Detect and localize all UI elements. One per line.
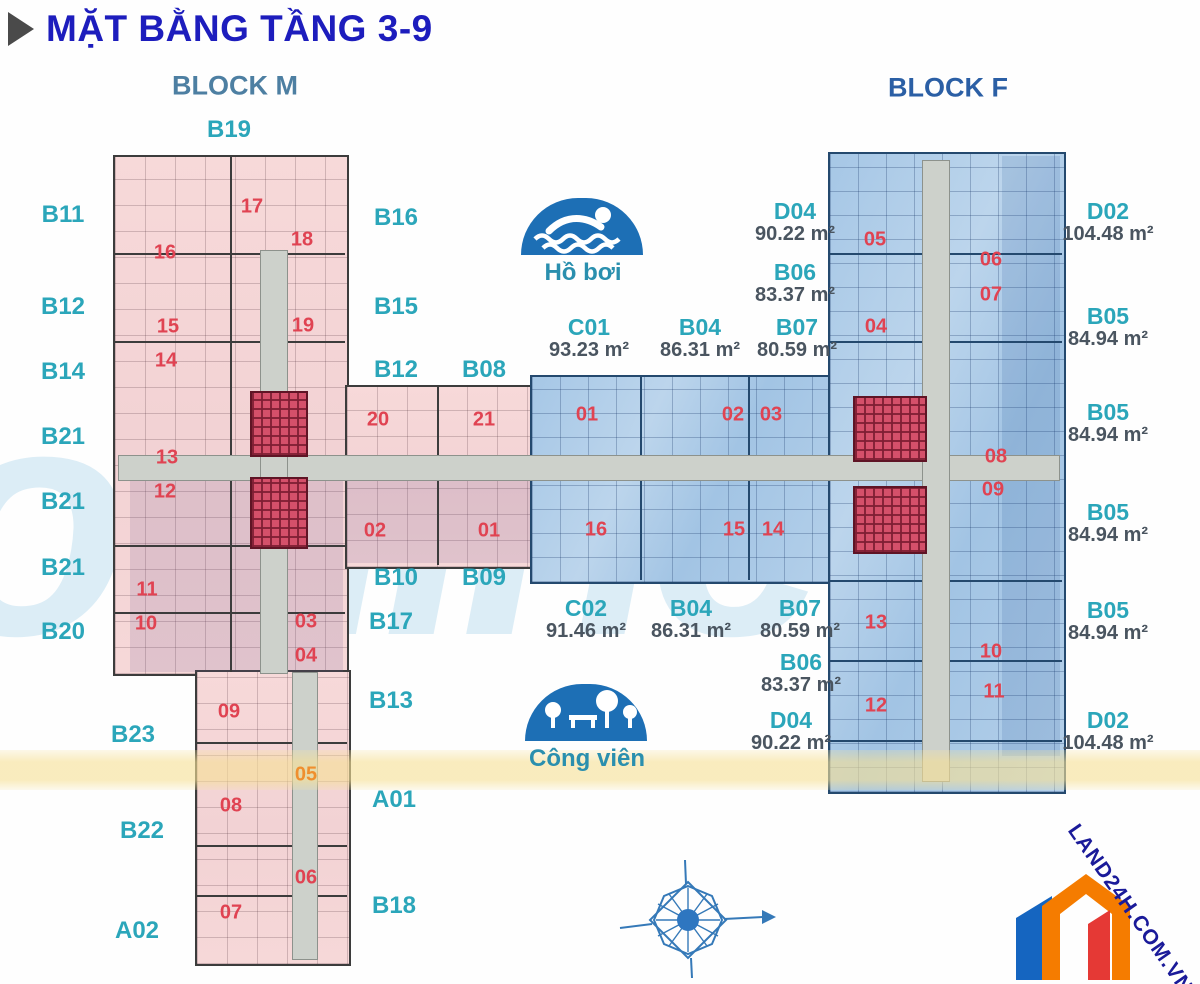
unit-number-15-25: 15	[723, 519, 745, 542]
unit-number-09-32: 09	[982, 479, 1004, 502]
unit-number-01-21: 01	[576, 404, 598, 427]
unit-number-07-20: 07	[220, 902, 242, 925]
block-m-tail-corridor	[292, 672, 318, 960]
unit-area: 86.31 m²	[651, 621, 731, 643]
unit-code: D02	[1062, 199, 1153, 224]
unit-number-15-3: 15	[157, 316, 179, 339]
floor-plan-page: online MẶT BẰNG TẦNG 3-9	[0, 0, 1200, 984]
unit-code: B06	[761, 650, 841, 675]
unit-area-label-b04-6: B0486.31 m²	[651, 596, 731, 642]
unit-number-21-11: 21	[473, 409, 495, 432]
unit-number-03-23: 03	[760, 404, 782, 427]
block-header-m: BLOCK M	[172, 71, 298, 102]
unit-type-label-b22-9: B22	[120, 817, 164, 845]
unit-type-label-b13-18: B13	[369, 687, 413, 715]
unit-area: 83.37 m²	[755, 285, 835, 307]
unit-type-label-b12-2: B12	[41, 293, 85, 321]
unit-type-label-b21-6: B21	[41, 554, 85, 582]
block-m-core-2	[250, 477, 308, 549]
unit-code: B05	[1068, 304, 1148, 329]
pool-amenity: Hồ bơi	[521, 198, 645, 287]
block-m-corridor	[260, 250, 288, 674]
unit-code: B05	[1068, 598, 1148, 623]
unit-area-label-d04-3: D0490.22 m²	[755, 199, 835, 245]
unit-type-label-a02-10: A02	[115, 917, 159, 945]
unit-type-label-b21-5: B21	[41, 488, 85, 516]
unit-area-label-d02-15: D02104.48 m²	[1062, 708, 1153, 754]
unit-area: 84.94 m²	[1068, 525, 1148, 547]
unit-code: B04	[651, 596, 731, 621]
block-f-corridor	[922, 160, 950, 782]
unit-number-16-24: 16	[585, 519, 607, 542]
unit-code: B05	[1068, 400, 1148, 425]
unit-number-14-26: 14	[762, 519, 784, 542]
unit-area: 93.23 m²	[549, 340, 629, 362]
unit-area: 83.37 m²	[761, 675, 841, 697]
unit-number-14-4: 14	[155, 350, 177, 373]
unit-area-label-c02-5: C0291.46 m²	[546, 596, 626, 642]
unit-number-07-29: 07	[980, 284, 1002, 307]
unit-number-19-5: 19	[292, 315, 314, 338]
unit-code: D04	[755, 199, 835, 224]
unit-number-08-31: 08	[985, 446, 1007, 469]
unit-area: 80.59 m²	[757, 340, 837, 362]
unit-area: 104.48 m²	[1062, 224, 1153, 246]
page-title-row: MẶT BẰNG TẦNG 3-9	[8, 8, 433, 50]
unit-area-label-b06-4: B0683.37 m²	[755, 260, 835, 306]
park-icon	[525, 684, 647, 741]
block-header-f: BLOCK F	[888, 73, 1008, 104]
unit-code: C01	[549, 315, 629, 340]
unit-type-label-b17-17: B17	[369, 608, 413, 636]
unit-type-label-b11-1: B11	[42, 201, 85, 229]
unit-number-11-35: 11	[983, 681, 1004, 704]
unit-area-label-b07-2: B0780.59 m²	[757, 315, 837, 361]
unit-number-06-28: 06	[980, 249, 1002, 272]
unit-type-label-b10-15: B10	[374, 564, 418, 592]
unit-area-label-b04-1: B0486.31 m²	[660, 315, 740, 361]
unit-code: B05	[1068, 500, 1148, 525]
unit-code: B07	[760, 596, 840, 621]
unit-area: 84.94 m²	[1068, 623, 1148, 645]
unit-type-label-b12-13: B12	[374, 356, 418, 384]
unit-number-11-8: 11	[136, 579, 157, 602]
unit-number-16-2: 16	[154, 242, 176, 265]
unit-type-label-b18-20: B18	[372, 892, 416, 920]
unit-area-label-d04-9: D0490.22 m²	[751, 708, 831, 754]
unit-type-label-b09-16: B09	[462, 564, 506, 592]
unit-number-02-22: 02	[722, 404, 744, 427]
unit-area-label-d02-10: D02104.48 m²	[1062, 199, 1153, 245]
unit-number-13-33: 13	[865, 612, 887, 635]
unit-type-label-b19-0: B19	[207, 116, 251, 144]
unit-code: C02	[546, 596, 626, 621]
play-triangle-icon	[8, 12, 34, 46]
unit-area: 84.94 m²	[1068, 425, 1148, 447]
unit-number-12-7: 12	[154, 481, 176, 504]
unit-number-08-18: 08	[220, 795, 242, 818]
unit-number-20-10: 20	[367, 409, 389, 432]
unit-number-10-34: 10	[980, 641, 1002, 664]
unit-number-04-30: 04	[865, 316, 887, 339]
unit-code: D04	[751, 708, 831, 733]
unit-area-label-b05-12: B0584.94 m²	[1068, 400, 1148, 446]
unit-area-label-b06-8: B0683.37 m²	[761, 650, 841, 696]
unit-number-17-0: 17	[241, 196, 263, 219]
unit-number-13-6: 13	[156, 447, 178, 470]
unit-code: B07	[757, 315, 837, 340]
unit-type-label-b21-4: B21	[41, 423, 85, 451]
page-title: MẶT BẰNG TẦNG 3-9	[46, 8, 433, 50]
unit-type-label-b15-12: B15	[374, 293, 418, 321]
compass-rose-icon	[612, 850, 782, 984]
park-label: Công viên	[525, 745, 649, 773]
unit-area: 91.46 m²	[546, 621, 626, 643]
unit-number-05-17: 05	[295, 764, 317, 787]
block-m-core-1	[250, 391, 308, 457]
unit-number-09-16: 09	[218, 701, 240, 724]
unit-area: 90.22 m²	[755, 224, 835, 246]
unit-type-label-b14-3: B14	[41, 358, 85, 386]
unit-number-05-27: 05	[864, 229, 886, 252]
unit-area: 84.94 m²	[1068, 329, 1148, 351]
pool-label: Hồ bơi	[521, 259, 645, 287]
unit-type-label-a01-19: A01	[372, 786, 416, 814]
park-amenity: Công viên	[525, 684, 649, 773]
unit-area: 90.22 m²	[751, 733, 831, 755]
unit-number-01-13: 01	[478, 520, 500, 543]
unit-type-label-b20-7: B20	[41, 618, 85, 646]
unit-type-label-b16-11: B16	[374, 204, 418, 232]
unit-type-label-b08-14: B08	[462, 356, 506, 384]
unit-number-06-19: 06	[295, 867, 317, 890]
unit-code: B06	[755, 260, 835, 285]
unit-area-label-b07-7: B0780.59 m²	[760, 596, 840, 642]
pool-icon	[521, 198, 643, 255]
unit-area-label-b05-11: B0584.94 m²	[1068, 304, 1148, 350]
unit-number-04-15: 04	[295, 645, 317, 668]
block-f-core-1	[853, 396, 927, 462]
unit-number-18-1: 18	[291, 229, 313, 252]
unit-number-12-36: 12	[865, 695, 887, 718]
unit-number-02-12: 02	[364, 520, 386, 543]
unit-number-03-14: 03	[295, 611, 317, 634]
unit-area: 104.48 m²	[1062, 733, 1153, 755]
unit-area: 80.59 m²	[760, 621, 840, 643]
block-f-core-2	[853, 486, 927, 554]
unit-area-label-b05-13: B0584.94 m²	[1068, 500, 1148, 546]
unit-type-label-b23-8: B23	[111, 721, 155, 749]
unit-number-10-9: 10	[135, 613, 157, 636]
unit-code: B04	[660, 315, 740, 340]
unit-area-label-b05-14: B0584.94 m²	[1068, 598, 1148, 644]
unit-area-label-c01-0: C0193.23 m²	[549, 315, 629, 361]
unit-code: D02	[1062, 708, 1153, 733]
unit-area: 86.31 m²	[660, 340, 740, 362]
